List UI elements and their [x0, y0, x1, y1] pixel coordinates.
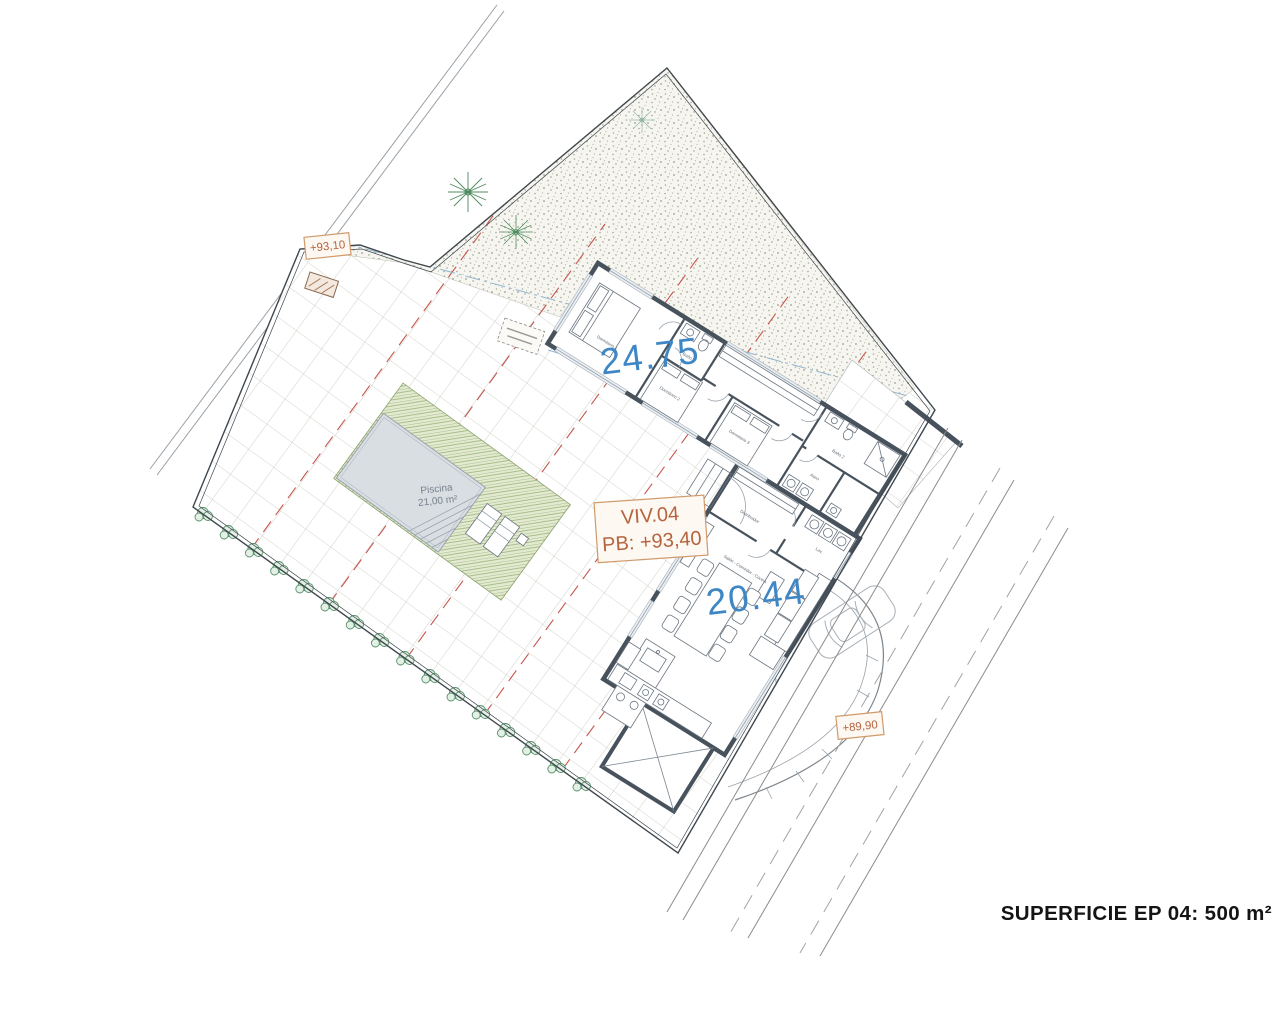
tree: [629, 107, 655, 133]
site-plan-drawing: Piscina 21,00 m²: [0, 0, 1280, 1024]
tree: [448, 172, 488, 212]
elevation-marker-bottom-right: +89,90: [836, 712, 884, 740]
unit-id-label: VIV.04: [620, 503, 680, 529]
elevation-marker-top-left: +93,10: [304, 233, 351, 260]
surface-footer-label: SUPERFICIE EP 04: 500 m²: [1001, 902, 1272, 925]
unit-label-box: VIV.04 PB: +93,40: [594, 495, 708, 563]
pool-label: Piscina 21,00 m²: [416, 482, 458, 509]
site-plan-canvas: Piscina 21,00 m²: [0, 0, 1280, 1024]
